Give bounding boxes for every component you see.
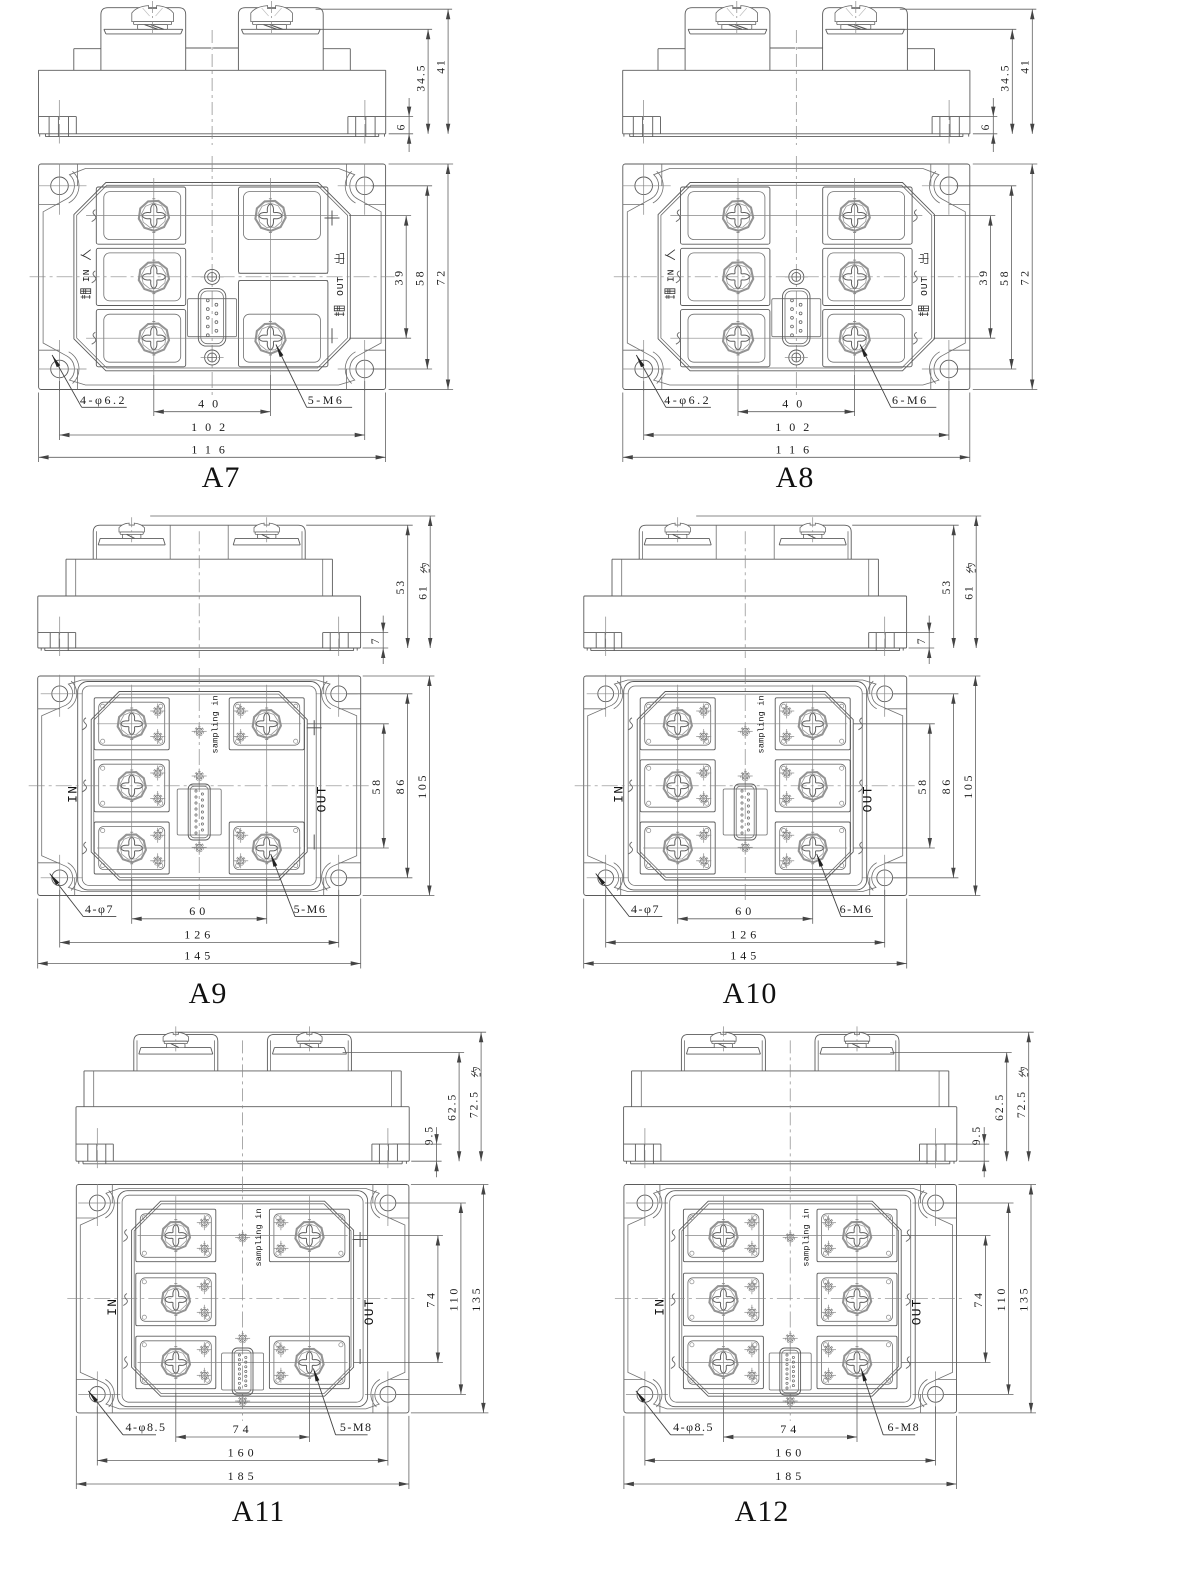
svg-text:58: 58 [997,269,1011,286]
svg-text:116: 116 [776,442,818,456]
svg-text:4-φ8.5: 4-φ8.5 [673,1420,714,1434]
svg-text:53: 53 [395,579,407,595]
svg-text:86: 86 [393,777,407,794]
svg-text:34.5: 34.5 [1000,63,1012,91]
svg-text:61: 61 [418,584,430,600]
svg-text:39: 39 [392,268,406,285]
svg-text:62.5: 62.5 [447,1093,459,1121]
svg-text:A7: A7 [202,461,241,494]
svg-text:58: 58 [413,269,427,286]
svg-text:126: 126 [730,928,760,942]
svg-text:IN: IN [612,785,627,803]
svg-text:IN: IN [105,1298,120,1316]
svg-text:116: 116 [191,442,233,456]
svg-text:58: 58 [915,777,929,794]
svg-text:62.5: 62.5 [994,1093,1006,1121]
svg-text:A8: A8 [776,461,815,494]
svg-text:41: 41 [1020,58,1032,74]
svg-text:102: 102 [191,420,233,434]
svg-text:40: 40 [198,397,226,411]
svg-text:110: 110 [994,1286,1008,1311]
svg-text:61: 61 [964,584,976,600]
svg-text:74: 74 [780,1422,800,1436]
svg-text:34.5: 34.5 [416,63,428,91]
svg-text:OUT: OUT [315,785,330,812]
svg-text:160: 160 [228,1446,258,1460]
svg-text:135: 135 [469,1286,483,1312]
svg-text:4-φ6.2: 4-φ6.2 [80,393,127,407]
svg-text:110: 110 [446,1286,460,1311]
svg-text:OUT: OUT [335,276,346,296]
svg-text:9.5: 9.5 [971,1125,983,1145]
svg-text:sampling in: sampling in [210,695,220,753]
svg-text:41: 41 [436,58,448,74]
svg-text:185: 185 [228,1469,258,1483]
svg-text:5-M6: 5-M6 [308,393,345,407]
svg-text:72.5: 72.5 [469,1090,481,1118]
svg-text:OUT: OUT [861,785,876,812]
svg-text:A12: A12 [735,1495,790,1528]
svg-text:185: 185 [775,1469,805,1483]
svg-text:74: 74 [971,1290,985,1307]
svg-text:72: 72 [1018,268,1032,285]
svg-text:OUT: OUT [910,1298,925,1325]
svg-text:7: 7 [370,636,382,644]
svg-text:sampling in: sampling in [756,695,766,753]
svg-text:105: 105 [961,773,975,799]
svg-text:7: 7 [916,636,928,644]
svg-text:A9: A9 [189,977,228,1010]
svg-text:160: 160 [775,1446,805,1460]
svg-text:6-M8: 6-M8 [887,1420,920,1434]
svg-text:105: 105 [415,773,429,799]
svg-text:40: 40 [782,397,810,411]
svg-text:6: 6 [396,123,408,131]
svg-text:IN: IN [66,785,81,803]
svg-text:86: 86 [939,777,953,794]
svg-text:126: 126 [184,928,214,942]
svg-text:6-M6: 6-M6 [892,393,929,407]
svg-text:4-φ8.5: 4-φ8.5 [126,1420,167,1434]
svg-text:IN: IN [81,269,92,282]
svg-text:IN: IN [653,1298,668,1316]
svg-text:145: 145 [730,949,760,963]
svg-text:sampling in: sampling in [254,1208,264,1266]
svg-text:6-M6: 6-M6 [840,902,873,916]
svg-text:53: 53 [941,579,953,595]
svg-text:102: 102 [775,420,817,434]
svg-text:135: 135 [1016,1286,1030,1312]
svg-text:9.5: 9.5 [424,1125,436,1145]
svg-text:145: 145 [184,949,214,963]
svg-text:OUT: OUT [362,1298,377,1325]
svg-text:IN: IN [665,269,676,282]
svg-text:sampling in: sampling in [801,1208,811,1266]
svg-text:74: 74 [233,1422,253,1436]
svg-text:72.5: 72.5 [1016,1090,1028,1118]
svg-text:60: 60 [189,904,209,918]
svg-text:74: 74 [423,1290,437,1307]
svg-text:A11: A11 [232,1495,286,1528]
svg-text:72: 72 [433,268,447,285]
svg-text:OUT: OUT [919,276,930,296]
svg-text:A10: A10 [723,977,778,1010]
svg-text:5-M6: 5-M6 [294,902,327,916]
svg-text:4-φ7: 4-φ7 [85,902,114,916]
svg-text:6: 6 [980,123,992,131]
svg-text:4-φ6.2: 4-φ6.2 [664,393,711,407]
svg-text:39: 39 [976,268,990,285]
svg-text:5-M8: 5-M8 [340,1420,373,1434]
svg-text:58: 58 [369,777,383,794]
svg-text:60: 60 [735,904,755,918]
svg-text:4-φ7: 4-φ7 [631,902,660,916]
